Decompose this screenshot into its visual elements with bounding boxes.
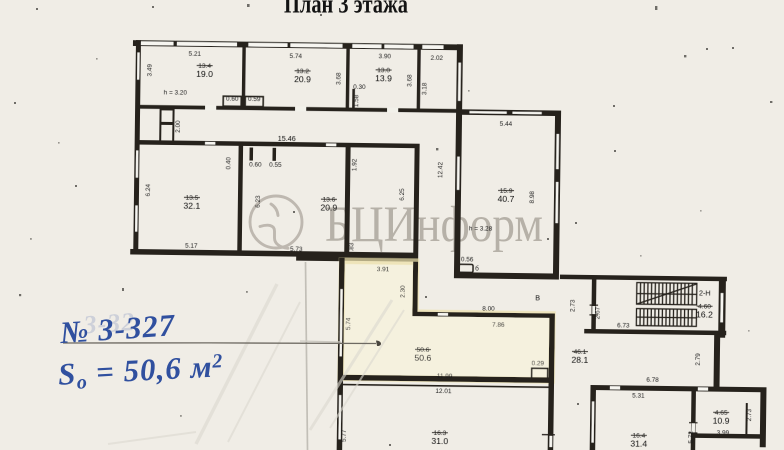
svg-text:h = 3.20: h = 3.20 xyxy=(164,89,188,96)
svg-text:БЦИнформ: БЦИнформ xyxy=(325,197,543,253)
svg-text:2.02: 2.02 xyxy=(431,55,444,62)
svg-text:20.9: 20.9 xyxy=(320,202,337,212)
svg-text:20.9: 20.9 xyxy=(294,74,311,84)
svg-text:2.30: 2.30 xyxy=(400,285,407,298)
svg-text:5.44: 5.44 xyxy=(500,121,513,128)
svg-text:40.7: 40.7 xyxy=(498,194,515,204)
svg-text:16.2: 16.2 xyxy=(696,309,713,319)
svg-text:3.49: 3.49 xyxy=(147,63,154,76)
svg-text:5.74: 5.74 xyxy=(345,317,352,330)
svg-text:19.0: 19.0 xyxy=(196,69,213,79)
svg-text:2.73: 2.73 xyxy=(569,299,576,312)
svg-text:5.17: 5.17 xyxy=(185,243,198,250)
svg-text:0.60: 0.60 xyxy=(226,96,239,103)
svg-text:10.9: 10.9 xyxy=(713,416,730,426)
svg-text:3.90: 3.90 xyxy=(379,53,392,60)
svg-text:В: В xyxy=(535,293,540,302)
svg-text:3.68: 3.68 xyxy=(406,74,413,87)
svg-text:31.4: 31.4 xyxy=(630,439,647,449)
svg-text:8.00: 8.00 xyxy=(482,306,495,313)
svg-text:3.91: 3.91 xyxy=(377,266,390,273)
svg-text:2-Н: 2-Н xyxy=(699,288,711,297)
svg-text:2.67: 2.67 xyxy=(594,306,601,319)
svg-text:5.21: 5.21 xyxy=(189,51,202,58)
svg-text:0.59: 0.59 xyxy=(248,96,261,103)
svg-text:31.0: 31.0 xyxy=(431,436,448,446)
svg-text:11.99: 11.99 xyxy=(437,373,453,380)
svg-text:0.30: 0.30 xyxy=(353,84,366,91)
svg-text:6.25: 6.25 xyxy=(399,188,406,201)
svg-text:2.79: 2.79 xyxy=(695,353,702,366)
svg-text:50.6: 50.6 xyxy=(414,353,431,363)
svg-text:5.77: 5.77 xyxy=(341,429,348,442)
svg-text:5.74: 5.74 xyxy=(290,53,303,60)
svg-text:1.92: 1.92 xyxy=(351,158,358,171)
svg-text:б: б xyxy=(475,264,479,272)
svg-text:0.60: 0.60 xyxy=(249,162,262,169)
svg-text:8.98: 8.98 xyxy=(529,191,536,204)
svg-text:3.18: 3.18 xyxy=(421,82,428,95)
svg-text:3.68: 3.68 xyxy=(335,72,342,85)
svg-text:6.78: 6.78 xyxy=(646,377,659,384)
svg-text:5.72: 5.72 xyxy=(688,431,695,444)
svg-text:15.46: 15.46 xyxy=(278,134,296,143)
svg-text:28.1: 28.1 xyxy=(571,355,588,365)
svg-text:0.56: 0.56 xyxy=(461,256,474,263)
svg-text:12.42: 12.42 xyxy=(437,162,444,179)
svg-text:6.73: 6.73 xyxy=(617,322,630,329)
svg-text:6.24: 6.24 xyxy=(145,183,152,196)
svg-text:12.01: 12.01 xyxy=(435,388,452,395)
svg-text:h = 3.28: h = 3.28 xyxy=(469,225,493,232)
svg-text:6.23: 6.23 xyxy=(255,195,262,208)
svg-text:0.55: 0.55 xyxy=(269,162,282,169)
svg-text:0.29: 0.29 xyxy=(532,360,545,367)
svg-text:7.86: 7.86 xyxy=(492,322,505,329)
svg-text:13.9: 13.9 xyxy=(375,73,392,83)
svg-text:2.00: 2.00 xyxy=(175,120,182,133)
svg-text:План 3 этажа: План 3 этажа xyxy=(284,0,408,19)
svg-text:32.1: 32.1 xyxy=(183,201,200,211)
svg-text:0.40: 0.40 xyxy=(225,157,232,170)
svg-text:5.31: 5.31 xyxy=(632,393,645,400)
